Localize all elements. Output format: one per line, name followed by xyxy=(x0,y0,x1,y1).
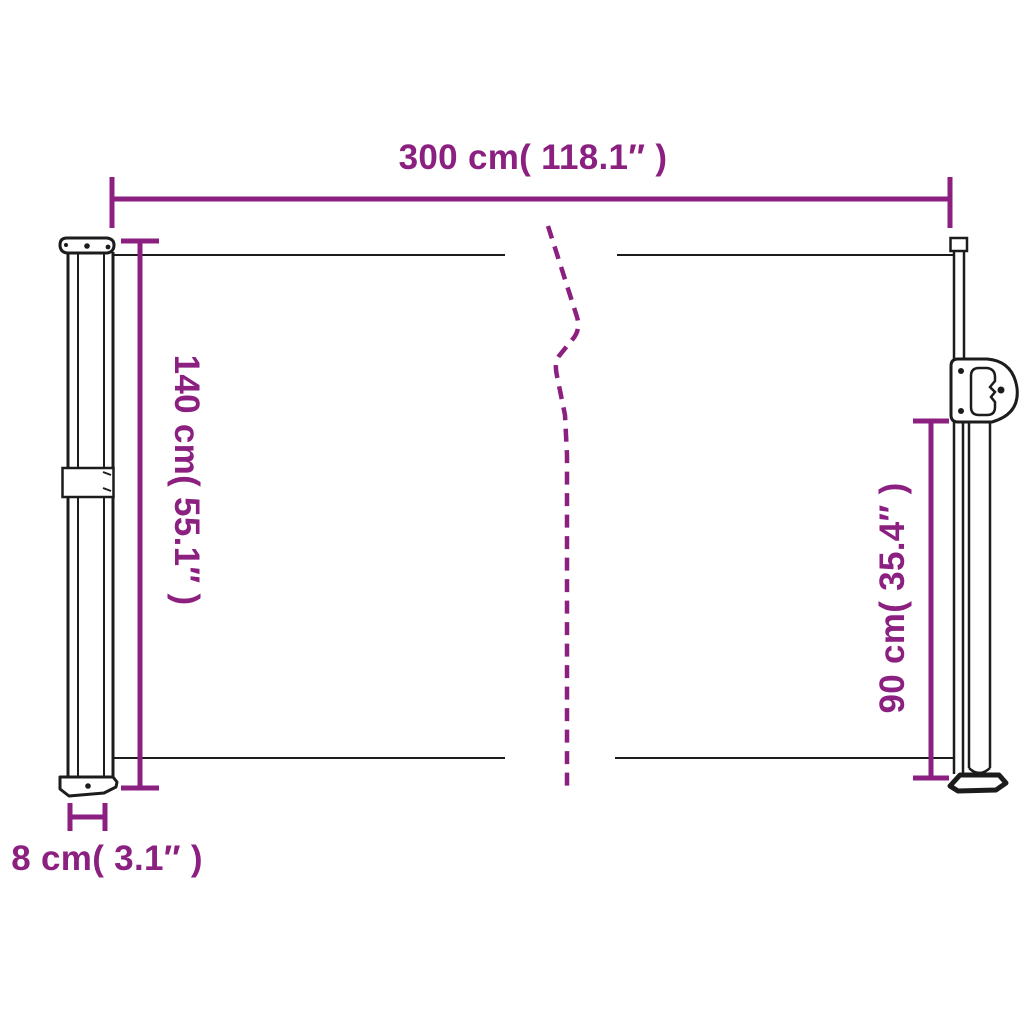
handle-grip xyxy=(971,368,995,415)
pole-top-cap xyxy=(951,238,968,251)
cassette-wall-bracket xyxy=(63,468,114,497)
pole-base-plate xyxy=(950,775,1006,791)
awning-cassette xyxy=(60,238,117,796)
height-right-dimension-line xyxy=(913,421,949,778)
depth-dimension-label: 8 cm( 3.1″ ) xyxy=(11,839,203,879)
height-left-dimension-line xyxy=(121,241,159,788)
pole-handle xyxy=(951,359,1017,422)
height-left-dimension-label: 140 cm( 55.1″ ) xyxy=(166,355,206,606)
product-dimension-diagram: 300 cm( 118.1″ ) 140 cm( 55.1″ ) 90 cm( … xyxy=(0,0,1024,1024)
cassette-top-cap xyxy=(60,238,114,253)
height-right-dimension-label: 90 cm( 35.4″ ) xyxy=(873,482,913,713)
width-dimension-line xyxy=(112,177,950,228)
support-pole xyxy=(950,238,1017,791)
width-dimension-label: 300 cm( 118.1″ ) xyxy=(399,138,668,178)
cassette-bottom-cap xyxy=(60,777,117,796)
break-line xyxy=(548,226,578,792)
depth-dimension-line xyxy=(70,803,105,831)
